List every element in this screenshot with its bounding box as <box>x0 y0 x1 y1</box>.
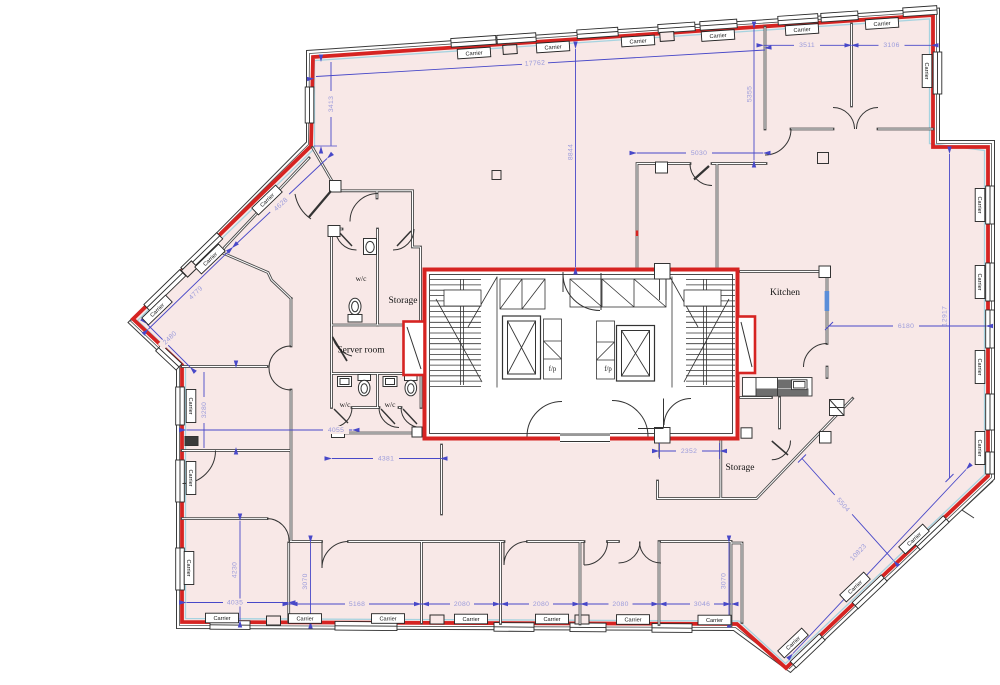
svg-text:3070: 3070 <box>302 573 309 589</box>
svg-text:Carrier: Carrier <box>793 27 811 34</box>
svg-text:Carrier: Carrier <box>465 50 483 57</box>
svg-text:w/c: w/c <box>385 400 397 409</box>
svg-text:w/c: w/c <box>356 274 368 283</box>
svg-text:3106: 3106 <box>883 42 899 49</box>
svg-text:6180: 6180 <box>898 323 914 330</box>
svg-text:Carrier: Carrier <box>185 559 191 576</box>
svg-text:8844: 8844 <box>567 144 574 160</box>
svg-text:17762: 17762 <box>525 60 546 68</box>
svg-text:3413: 3413 <box>328 96 335 112</box>
svg-text:4230: 4230 <box>231 562 238 578</box>
svg-text:f/p: f/p <box>549 366 557 373</box>
svg-text:12917: 12917 <box>941 306 948 326</box>
svg-text:3046: 3046 <box>694 601 710 608</box>
svg-text:Carrier: Carrier <box>543 617 560 623</box>
svg-text:4055: 4055 <box>328 427 344 434</box>
svg-text:Carrier: Carrier <box>296 617 313 623</box>
svg-text:Carrier: Carrier <box>624 618 641 624</box>
svg-text:Carrier: Carrier <box>976 439 982 456</box>
svg-text:Carrier: Carrier <box>187 397 193 414</box>
svg-text:2080: 2080 <box>533 601 549 608</box>
svg-text:2080: 2080 <box>612 601 628 608</box>
svg-text:Carrier: Carrier <box>462 617 479 623</box>
svg-text:3511: 3511 <box>799 42 815 49</box>
svg-text:Carrier: Carrier <box>213 616 230 622</box>
svg-text:Carrier: Carrier <box>976 196 982 213</box>
svg-text:f/p: f/p <box>604 366 612 373</box>
svg-text:Carrier: Carrier <box>629 38 647 45</box>
svg-text:Carrier: Carrier <box>379 617 396 623</box>
svg-text:Kitchen: Kitchen <box>770 288 800 298</box>
svg-text:5355: 5355 <box>746 86 753 102</box>
svg-text:2352: 2352 <box>681 448 697 455</box>
svg-text:Storage: Storage <box>388 296 417 306</box>
svg-text:Carrier: Carrier <box>923 62 929 79</box>
svg-text:3070: 3070 <box>720 573 727 589</box>
svg-text:Storage: Storage <box>725 463 754 473</box>
svg-text:5168: 5168 <box>349 601 365 608</box>
svg-text:Carrier: Carrier <box>709 33 727 40</box>
svg-text:Carrier: Carrier <box>187 469 193 486</box>
svg-text:Carrier: Carrier <box>873 21 891 28</box>
svg-text:Carrier: Carrier <box>706 618 723 624</box>
svg-text:4381: 4381 <box>378 455 394 462</box>
svg-text:Server room: Server room <box>337 346 385 356</box>
svg-text:w/c: w/c <box>340 400 352 409</box>
svg-text:Carrier: Carrier <box>976 358 982 375</box>
svg-text:4035: 4035 <box>227 599 243 606</box>
svg-text:5030: 5030 <box>691 150 707 157</box>
svg-text:2080: 2080 <box>454 601 470 608</box>
svg-text:Carrier: Carrier <box>544 44 562 51</box>
svg-text:3280: 3280 <box>201 402 208 418</box>
svg-text:Carrier: Carrier <box>976 273 982 290</box>
